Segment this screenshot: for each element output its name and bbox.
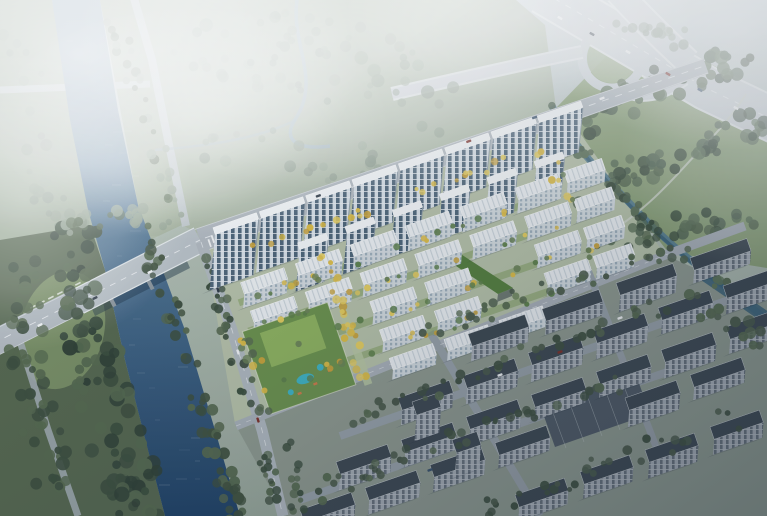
- haze-overlay: [0, 0, 767, 516]
- aerial-rendering: [0, 0, 767, 516]
- cool-tint: [0, 0, 767, 516]
